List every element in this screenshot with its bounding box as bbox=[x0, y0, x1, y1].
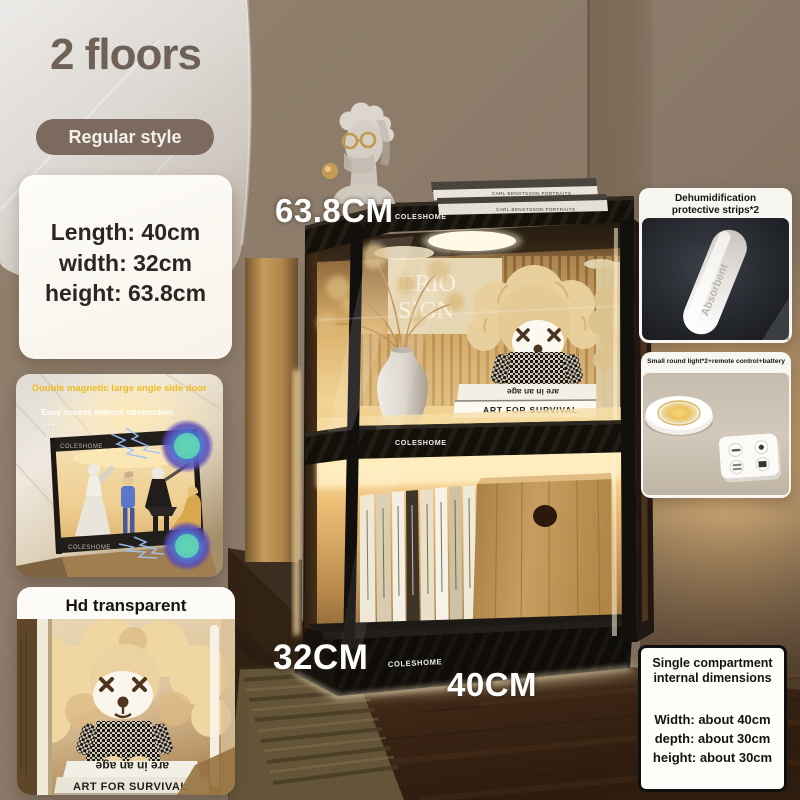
svg-text:are in an age: are in an age bbox=[507, 387, 559, 397]
svg-text:COLESHOME: COLESHOME bbox=[395, 438, 447, 447]
svg-text:CARL BENGTSSON PORTRAITS: CARL BENGTSSON PORTRAITS bbox=[496, 207, 575, 212]
svg-text:are in an age: are in an age bbox=[95, 759, 169, 773]
svg-text:CARL BENGTSSON PORTRAITS: CARL BENGTSSON PORTRAITS bbox=[492, 191, 571, 196]
svg-text:ART FOR SURVIVAL: ART FOR SURVIVAL bbox=[73, 781, 188, 793]
svg-text:COLESHOME: COLESHOME bbox=[60, 444, 103, 450]
svg-text:COLESHOME: COLESHOME bbox=[68, 545, 111, 551]
